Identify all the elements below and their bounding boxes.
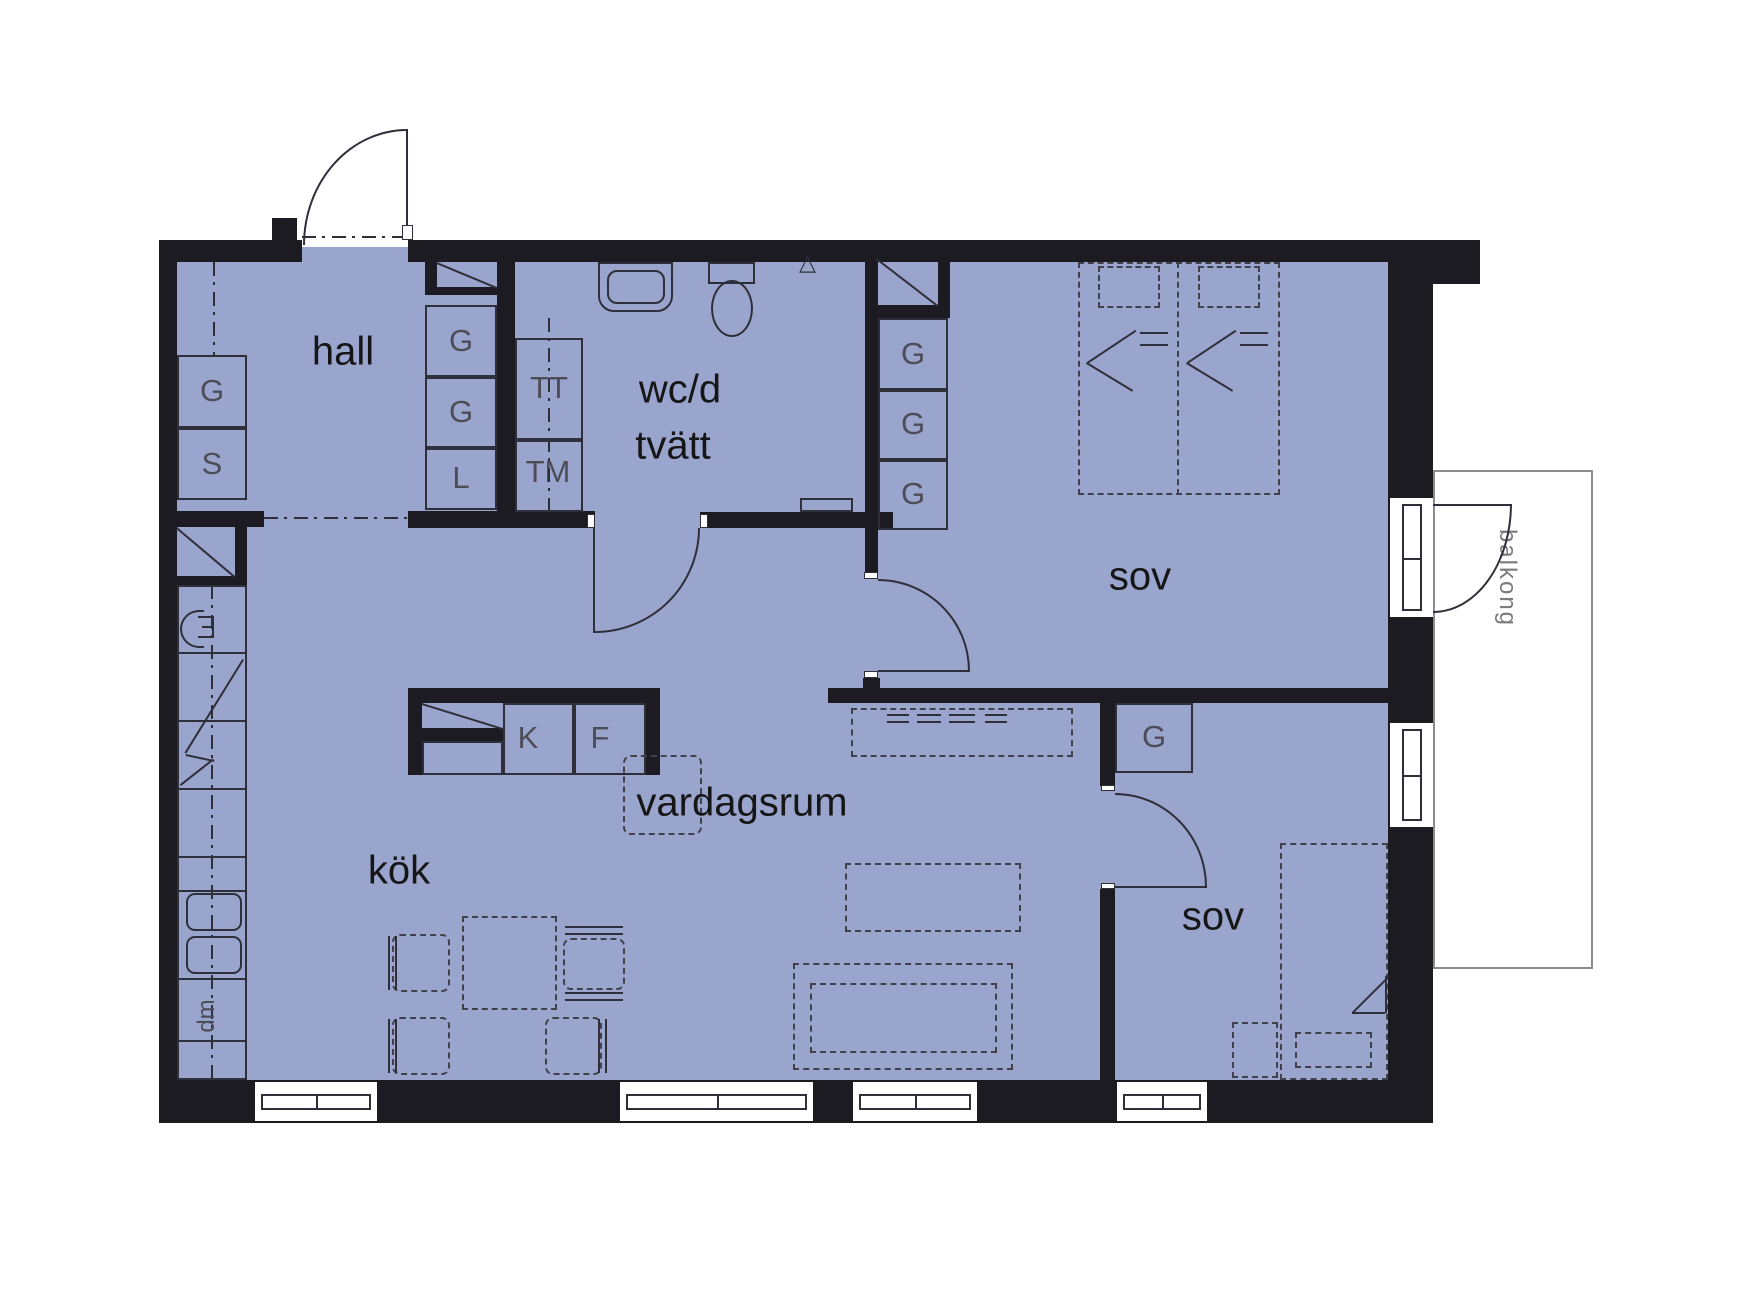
entrance-door-stop <box>272 218 297 240</box>
living-window-2 <box>853 1082 977 1121</box>
dining-table <box>462 916 557 1010</box>
balcony-door-mullion <box>1402 558 1422 560</box>
oven-icon-line <box>212 616 214 638</box>
kitchen-window <box>255 1082 377 1121</box>
sov2-bottom-window <box>1117 1082 1207 1121</box>
entrance-threshold-floor <box>302 247 408 262</box>
kf-lower-cell <box>422 741 503 775</box>
laundry-center-line <box>548 318 550 512</box>
chair-back <box>388 936 397 990</box>
sov1-pillow <box>1098 266 1160 308</box>
sov1-cabinet-g3-label: G <box>901 476 925 512</box>
chair-back <box>565 992 623 1001</box>
media-shelf <box>917 714 941 723</box>
window-mullion <box>1162 1094 1164 1110</box>
kf-unit-left-bar <box>408 688 422 775</box>
wall-sov2-west-lower <box>1100 889 1115 1080</box>
hall-rail-line <box>213 262 215 355</box>
sov1-cabinet-g2-label: G <box>901 406 925 442</box>
chair-back <box>598 1019 607 1073</box>
shower-triangle-icon: △ <box>799 250 816 276</box>
wall-living-sov1 <box>828 688 1433 703</box>
window-mullion <box>316 1094 318 1110</box>
sov1-door-jamb <box>864 671 878 678</box>
wall-hall-south-left <box>159 511 264 527</box>
wall-hall-south-mid <box>408 511 595 528</box>
wall-sov1-door-stub <box>863 678 880 688</box>
hall-label: hall <box>312 330 374 375</box>
sov1-label: sov <box>1109 555 1171 600</box>
chair-back <box>565 926 623 935</box>
wc-label-line2: tvätt <box>635 424 711 469</box>
duvet-edge <box>1140 344 1168 346</box>
shaft-wcd-right-bar <box>938 258 950 318</box>
toilet-bowl <box>711 280 753 337</box>
wall-top-left <box>159 240 302 262</box>
sov2-door-jamb <box>1101 785 1115 791</box>
wall-left <box>159 240 177 1123</box>
sov1-pillow <box>1198 266 1260 308</box>
sov1-door-jamb <box>864 572 878 579</box>
entrance-door-arc <box>303 129 407 245</box>
living-label: vardagsrum <box>636 781 847 826</box>
wc-label-line1: wc/d <box>639 368 721 413</box>
duvet-edge <box>1240 332 1268 334</box>
shaft-kok-bottom-bar <box>177 576 247 585</box>
kf-unit-inner-bar <box>422 728 503 741</box>
dining-chair <box>392 934 450 992</box>
coffee-table <box>845 863 1021 932</box>
hall-cabinet-g2-label: G <box>449 394 473 430</box>
sov2-duvet-fold <box>1385 976 1387 1013</box>
kitchen-label: kök <box>368 849 430 894</box>
media-shelf <box>949 714 975 723</box>
floor-plan: balkong K F G S G G L TT TM <box>0 0 1762 1293</box>
wall-sov2-west-upper <box>1100 703 1115 786</box>
sov2-door-jamb <box>1101 883 1115 889</box>
bathroom-sink-basin <box>607 270 665 304</box>
fridge-label: K <box>518 720 539 756</box>
dishwasher-label: dm <box>193 999 221 1032</box>
freezer-label: F <box>591 720 610 756</box>
sov2-duvet-fold <box>1352 1012 1385 1014</box>
window-mullion <box>915 1094 917 1110</box>
hall-kitchen-boundary <box>264 517 408 519</box>
shaft-hall-bottom-bar <box>425 287 500 295</box>
sov2-chest <box>1295 1032 1372 1068</box>
dining-chair <box>563 938 625 990</box>
hall-cabinet-s-label: S <box>202 446 223 482</box>
hall-cabinet-g-label: G <box>200 373 224 409</box>
duvet-edge <box>1240 344 1268 346</box>
window-mullion <box>1402 775 1422 777</box>
media-shelf <box>985 714 1007 723</box>
sov2-cabinet-g-label: G <box>1142 719 1166 755</box>
living-window-1 <box>620 1082 813 1121</box>
sov1-bed-divider <box>1177 262 1181 495</box>
wall-top-right <box>408 240 1433 262</box>
wcd-door-jamb <box>700 514 708 528</box>
sov2-label: sov <box>1182 895 1244 940</box>
dining-chair <box>392 1017 450 1075</box>
wall-wcd-west <box>497 262 515 527</box>
hall-cabinet-g1-label: G <box>449 323 473 359</box>
sofa-seat <box>810 983 997 1053</box>
entrance-door-jamb <box>402 225 413 240</box>
sov2-side-window <box>1390 723 1433 827</box>
sov1-cabinet-g1-label: G <box>901 336 925 372</box>
sink-basin <box>186 893 242 931</box>
sink-basin <box>186 936 242 974</box>
chair-back <box>388 1019 397 1073</box>
sov2-nightstand <box>1232 1022 1278 1078</box>
duvet-edge <box>1140 332 1168 334</box>
dining-chair <box>545 1017 602 1075</box>
window-mullion <box>717 1094 719 1110</box>
kf-unit-top-bar <box>408 688 660 703</box>
hall-cabinet-l-label: L <box>452 460 469 496</box>
wall-right <box>1388 240 1433 1123</box>
wcd-door-jamb <box>587 514 595 528</box>
media-shelf <box>887 714 909 723</box>
wcd-radiator <box>800 498 853 512</box>
balcony-door <box>1390 498 1433 617</box>
